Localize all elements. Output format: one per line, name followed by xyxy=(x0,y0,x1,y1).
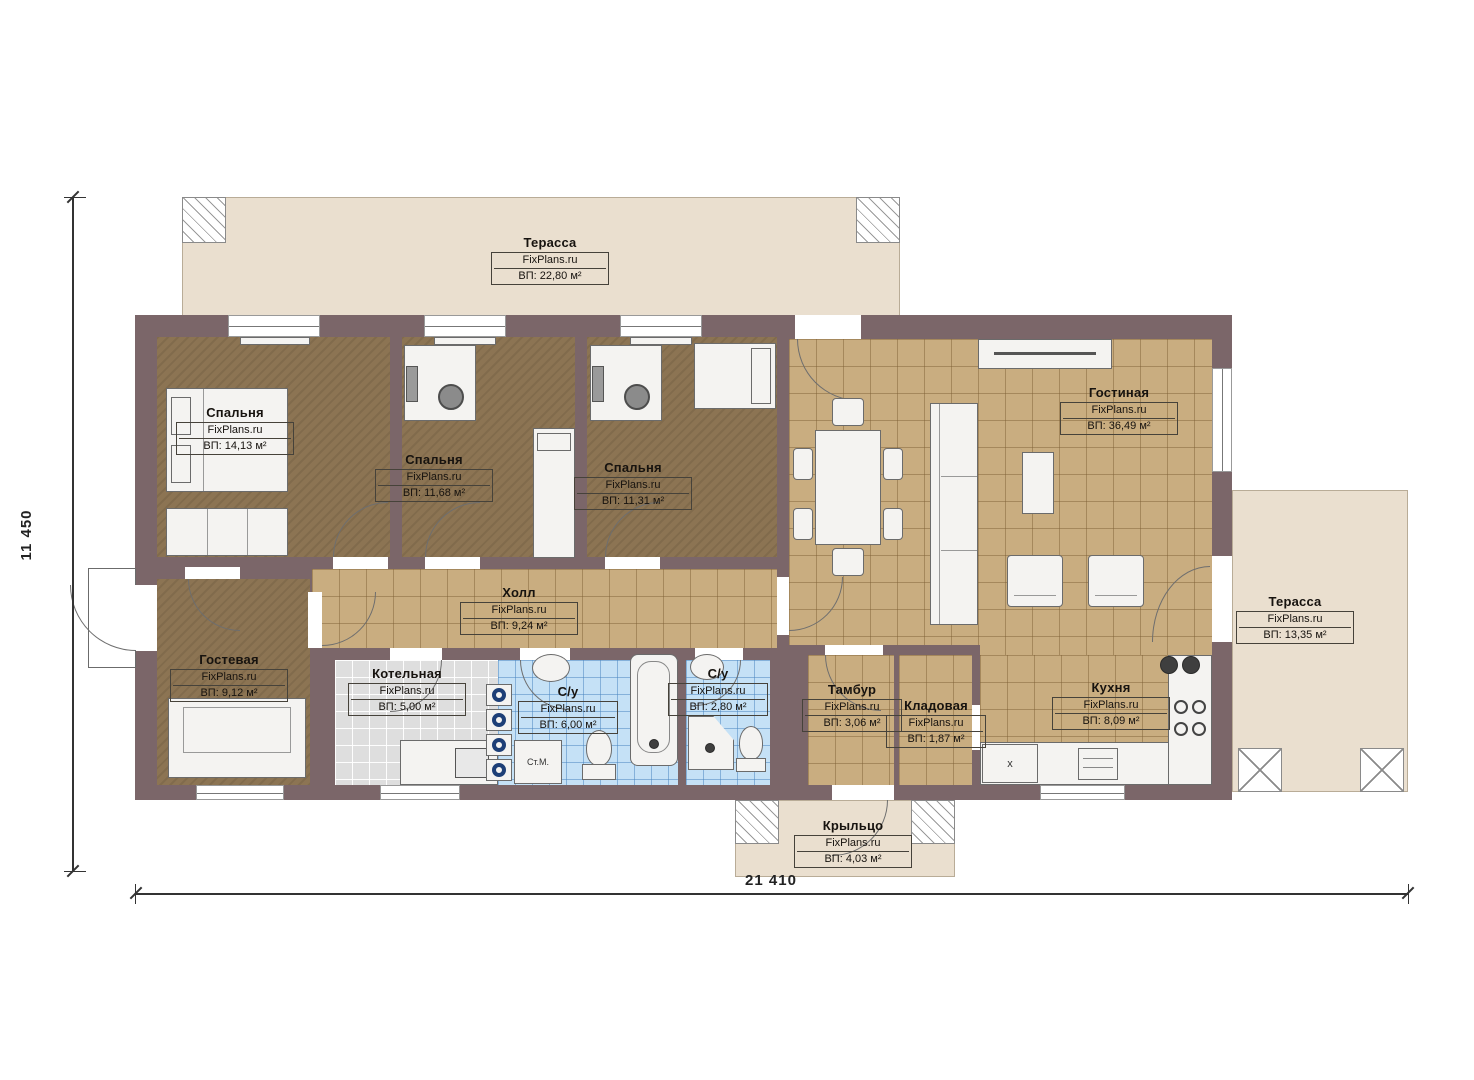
dining-table xyxy=(815,430,881,545)
door-opening xyxy=(605,557,660,569)
room-label-bath-1: С/у FixPlans.ruВП: 6,00 м² xyxy=(518,684,618,734)
horizontal-dimension-line xyxy=(135,893,1408,895)
vertical-dimension-line xyxy=(72,197,74,872)
door-opening xyxy=(425,557,480,569)
chair-icon xyxy=(883,508,903,540)
window-icon xyxy=(620,315,702,337)
burner-icon xyxy=(1192,700,1206,714)
brand-text: FixPlans.ru xyxy=(671,684,765,699)
armchair xyxy=(1007,555,1063,607)
room-label-guest: Гостевая FixPlans.ruВП: 9,12 м² xyxy=(170,652,288,702)
chair-icon xyxy=(793,508,813,540)
sink-bowl-icon xyxy=(1182,656,1200,674)
sofa xyxy=(930,403,978,625)
armchair xyxy=(1088,555,1144,607)
room-label-porch: Крыльцо FixPlans.ruВП: 4,03 м² xyxy=(794,818,912,868)
brand-text: FixPlans.ru xyxy=(577,478,689,493)
column-icon xyxy=(735,800,779,844)
chair-icon xyxy=(793,448,813,480)
window-icon xyxy=(1040,785,1125,800)
toilet-tank xyxy=(582,764,616,780)
toilet-icon xyxy=(739,726,763,760)
plumbing-icon xyxy=(486,759,512,781)
radiator-icon xyxy=(630,337,692,345)
chair-icon xyxy=(832,398,864,426)
column-icon xyxy=(911,800,955,844)
room-label-hall: Холл FixPlans.ruВП: 9,24 м² xyxy=(460,585,578,635)
radiator-icon xyxy=(434,337,496,345)
sink-icon xyxy=(532,654,570,682)
room-label-bedroom-2: Спальня FixPlans.ruВП: 11,68 м² xyxy=(375,452,493,502)
column-icon xyxy=(1238,748,1282,792)
brand-text: FixPlans.ru xyxy=(351,684,463,699)
door-opening xyxy=(825,645,883,655)
kitchen-sink: x xyxy=(982,744,1038,783)
burner-icon xyxy=(1174,722,1188,736)
plumbing-icon xyxy=(486,684,512,706)
room-label-storage: Кладовая FixPlans.ruВП: 1,87 м² xyxy=(886,698,986,748)
brand-text: FixPlans.ru xyxy=(179,423,291,438)
door-opening xyxy=(390,648,442,660)
desk-chair xyxy=(624,384,650,410)
room-label-terrace-top: Терасса FixPlans.ruВП: 22,80 м² xyxy=(491,235,609,285)
brand-text: FixPlans.ru xyxy=(494,253,606,268)
single-bed xyxy=(533,428,575,558)
chair-icon xyxy=(832,548,864,576)
column-icon xyxy=(856,197,900,243)
pillow-icon xyxy=(751,348,771,404)
monitor-icon xyxy=(592,366,604,402)
pillow-icon xyxy=(537,433,571,451)
sink-marker: x xyxy=(1007,758,1013,770)
washing-machine-label: Ст.М. xyxy=(527,757,549,767)
sink-bowl-icon xyxy=(1160,656,1178,674)
door-opening xyxy=(185,567,240,579)
burner-icon xyxy=(1174,700,1188,714)
desk-chair xyxy=(438,384,464,410)
brand-text: FixPlans.ru xyxy=(463,603,575,618)
brand-text: FixPlans.ru xyxy=(173,670,285,685)
floor-plan: Ст.М. x Терасса FixPlans.ruВП: 22,80 м² … xyxy=(0,0,1474,1080)
brand-text: FixPlans.ru xyxy=(378,470,490,485)
window-icon xyxy=(424,315,506,337)
window-icon xyxy=(196,785,284,800)
room-label-bedroom-1: Спальня FixPlans.ruВП: 14,13 м² xyxy=(176,405,294,455)
kitchen-counter xyxy=(1168,655,1212,785)
brand-text: FixPlans.ru xyxy=(889,716,983,731)
washing-machine: Ст.М. xyxy=(514,740,562,784)
room-label-living: Гостиная FixPlans.ruВП: 36,49 м² xyxy=(1060,385,1178,435)
plumbing-icon xyxy=(486,734,512,756)
door-opening xyxy=(333,557,388,569)
monitor-icon xyxy=(406,366,418,402)
dishwasher xyxy=(1078,748,1118,780)
width-dimension: 21 410 xyxy=(711,872,831,889)
column-icon xyxy=(182,197,226,243)
toilet-tank xyxy=(736,758,766,772)
brand-text: FixPlans.ru xyxy=(797,836,909,851)
height-dimension: 11 450 xyxy=(18,475,35,595)
door-opening xyxy=(135,585,157,651)
door-opening xyxy=(777,577,789,635)
toilet-icon xyxy=(586,730,612,766)
room-label-boiler: Котельная FixPlans.ruВП: 5,00 м² xyxy=(348,666,466,716)
entrance-door-arc-icon xyxy=(70,585,136,651)
single-bed xyxy=(694,343,776,409)
burner-icon xyxy=(1192,722,1206,736)
window-icon xyxy=(228,315,320,337)
sofa xyxy=(168,698,306,778)
plumbing-icon xyxy=(486,709,512,731)
brand-text: FixPlans.ru xyxy=(1055,698,1167,713)
boiler-appliance xyxy=(455,748,489,778)
dresser xyxy=(166,508,288,556)
door-opening xyxy=(1212,556,1232,642)
chair-icon xyxy=(883,448,903,480)
coffee-table xyxy=(1022,452,1054,514)
radiator-icon xyxy=(240,337,310,345)
drain-icon xyxy=(649,739,659,749)
door-opening xyxy=(832,785,894,800)
window-icon xyxy=(380,785,460,800)
room-label-kitchen: Кухня FixPlans.ruВП: 8,09 м² xyxy=(1052,680,1170,730)
door-opening xyxy=(795,315,861,339)
room-label-bedroom-3: Спальня FixPlans.ruВП: 11,31 м² xyxy=(574,460,692,510)
brand-text: FixPlans.ru xyxy=(1239,612,1351,627)
room-label-terrace-right: Терасса FixPlans.ruВП: 13,35 м² xyxy=(1236,594,1354,644)
brand-text: FixPlans.ru xyxy=(805,700,899,715)
brand-text: FixPlans.ru xyxy=(1063,403,1175,418)
door-opening xyxy=(308,592,322,648)
brand-text: FixPlans.ru xyxy=(521,702,615,717)
tv-icon xyxy=(994,352,1096,355)
window-icon xyxy=(1212,368,1232,472)
room-label-bath-2: С/у FixPlans.ruВП: 2,80 м² xyxy=(668,666,768,716)
column-icon xyxy=(1360,748,1404,792)
